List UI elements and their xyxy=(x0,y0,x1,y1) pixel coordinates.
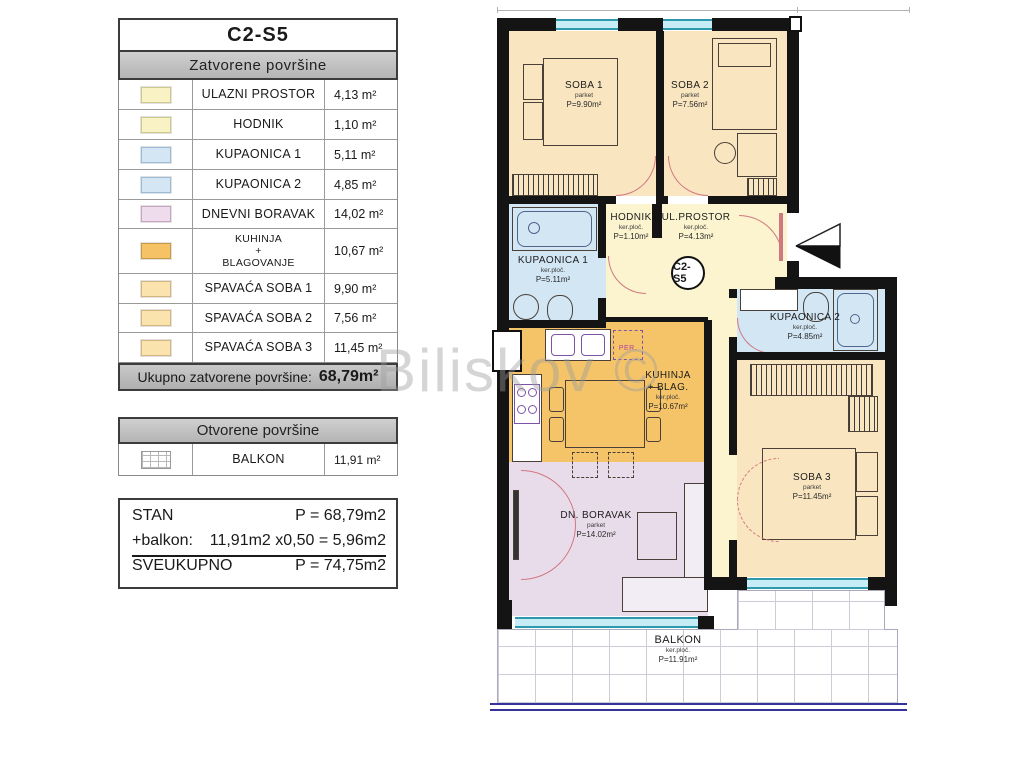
wall xyxy=(618,18,663,31)
balcony-railing xyxy=(490,703,907,711)
wall xyxy=(708,196,787,204)
row-value: 4,13 m² xyxy=(325,80,397,109)
total-value: 68,79m² xyxy=(319,368,379,386)
wall xyxy=(497,600,512,629)
wall-pillar xyxy=(789,16,802,32)
row-label: DNEVNI BORAVAK xyxy=(193,200,325,228)
label-soba1: SOBA 1 parket P=9.90m² xyxy=(534,80,634,109)
unit-title: C2-S5 xyxy=(118,18,398,52)
chair-ghost xyxy=(608,452,634,478)
entrance-door-leaf xyxy=(779,213,783,261)
label-kuhinja: KUHINJA + BLAG. ker.ploč. P=10.67m² xyxy=(618,370,718,411)
summary-line-balkon: +balkon: 11,91m2 x0,50 = 5,96m2 xyxy=(132,532,386,557)
table-row: SPAVAĆA SOBA 2 7,56 m² xyxy=(119,304,397,333)
row-label: ULAZNI PROSTOR xyxy=(193,80,325,109)
row-value: 11,91 m² xyxy=(325,444,397,475)
floorplan-page: { "legend": { "title": "C2-S5", "closed_… xyxy=(0,0,1024,768)
label-soba3: SOBA 3 parket P=11.45m² xyxy=(762,472,862,501)
wall xyxy=(868,577,885,590)
wall xyxy=(885,277,897,606)
table-row: SPAVAĆA SOBA 1 9,90 m² xyxy=(119,274,397,304)
room-balkon-notch xyxy=(737,590,885,630)
window-soba3-balkon xyxy=(747,578,868,589)
table-row: SPAVAĆA SOBA 3 11,45 m² xyxy=(119,333,397,362)
row-label: HODNIK xyxy=(193,110,325,139)
legend-panel: C2-S5 Zatvorene površine ULAZNI PROSTOR … xyxy=(118,18,398,476)
row-label: KUPAONICA 2 xyxy=(193,170,325,199)
sink-counter-kupaonica2 xyxy=(740,289,798,311)
table-row: ULAZNI PROSTOR 4,13 m² xyxy=(119,80,397,110)
summary-line-total: SVEUKUPNO P = 74,75m2 xyxy=(132,557,386,582)
unit-badge: C2-S5 xyxy=(671,256,705,290)
color-swatch-kupaonica2 xyxy=(141,177,171,193)
label-ulprostor: UL.PROSTOR ker.ploč. P=4.13m² xyxy=(646,212,746,241)
window-dnevni-balkon xyxy=(515,617,698,628)
dimension-tick xyxy=(797,7,798,13)
color-swatch-ulazni xyxy=(141,87,171,103)
row-value: 1,10 m² xyxy=(325,110,397,139)
color-swatch-kuhinja xyxy=(141,243,171,259)
wardrobe-soba1 xyxy=(512,174,598,196)
pillow-soba2 xyxy=(718,43,771,67)
chair-soba2 xyxy=(714,142,736,164)
grid-swatch-balkon xyxy=(141,451,171,469)
dimension-tick xyxy=(497,7,498,13)
wall xyxy=(729,337,737,455)
burner-icon xyxy=(528,405,537,414)
table-row: KUPAONICA 1 5,11 m² xyxy=(119,140,397,170)
entrance-arrow-icon xyxy=(794,222,842,270)
closed-areas-table: ULAZNI PROSTOR 4,13 m² HODNIK 1,10 m² KU… xyxy=(118,80,398,363)
table-row: HODNIK 1,10 m² xyxy=(119,110,397,140)
desk-soba2 xyxy=(737,133,777,177)
chair xyxy=(646,417,661,442)
label-kupaonica1: KUPAONICA 1 ker.ploč. P=5.11m² xyxy=(503,255,603,284)
drain-icon xyxy=(528,222,540,234)
wall xyxy=(737,352,885,360)
sink-basin xyxy=(551,334,575,356)
row-label: SPAVAĆA SOBA 3 xyxy=(193,333,325,362)
row-label: KUHINJA + BLAGOVANJE xyxy=(193,229,325,273)
color-swatch-soba2 xyxy=(141,310,171,326)
window-soba2 xyxy=(663,19,712,30)
row-label: SPAVAĆA SOBA 2 xyxy=(193,304,325,332)
total-label: Ukupno zatvorene površine: xyxy=(138,369,312,385)
chair-ghost xyxy=(572,452,598,478)
washer-label: PER. xyxy=(613,345,643,352)
wall xyxy=(729,289,737,298)
wall xyxy=(729,540,737,577)
wardrobe-soba3 xyxy=(750,364,873,396)
row-value: 9,90 m² xyxy=(325,274,397,303)
table-row: KUPAONICA 2 4,85 m² xyxy=(119,170,397,200)
burner-icon xyxy=(517,388,526,397)
table-row: DNEVNI BORAVAK 14,02 m² xyxy=(119,200,397,229)
wall xyxy=(775,277,897,289)
table-row-balkon: BALKON 11,91 m² xyxy=(118,444,398,476)
dimension-line xyxy=(497,10,910,11)
label-balkon: BALKON ker.ploč. P=11.91m² xyxy=(628,634,728,665)
wall xyxy=(787,18,799,213)
row-value: 10,67 m² xyxy=(325,229,397,273)
pillow-soba3 xyxy=(856,496,878,536)
color-swatch-soba3 xyxy=(141,340,171,356)
row-value: 4,85 m² xyxy=(325,170,397,199)
sink-basin xyxy=(581,334,605,356)
shelf-soba2 xyxy=(747,178,777,196)
row-label: BALKON xyxy=(193,444,325,475)
wall xyxy=(656,196,668,204)
color-swatch-kupaonica1 xyxy=(141,147,171,163)
wall xyxy=(729,577,747,590)
color-swatch-dnevni xyxy=(141,206,171,222)
burner-icon xyxy=(517,405,526,414)
open-areas-header: Otvorene površine xyxy=(118,417,398,444)
wall xyxy=(704,320,712,577)
color-swatch-hodnik xyxy=(141,117,171,133)
row-value: 5,11 m² xyxy=(325,140,397,169)
sofa-horizontal xyxy=(622,577,708,612)
wardrobe-soba3 xyxy=(848,396,878,432)
label-dnevni-boravak: DN. BORAVAK parket P=14.02m² xyxy=(546,510,646,539)
tv-panel xyxy=(513,490,519,560)
table-row: KUHINJA + BLAGOVANJE 10,67 m² xyxy=(119,229,397,274)
row-value: 14,02 m² xyxy=(325,200,397,228)
chair xyxy=(549,417,564,442)
label-soba2: SOBA 2 parket P=7.56m² xyxy=(640,80,740,109)
wall xyxy=(509,196,616,204)
wall xyxy=(712,18,799,31)
wall xyxy=(606,317,708,322)
window-soba1 xyxy=(556,19,618,30)
row-value: 7,56 m² xyxy=(325,304,397,332)
summary-box: STAN P = 68,79m2 +balkon: 11,91m2 x0,50 … xyxy=(118,498,398,589)
dimension-tick xyxy=(909,7,910,13)
wall xyxy=(698,616,714,629)
wall xyxy=(656,31,664,196)
color-swatch-soba1 xyxy=(141,281,171,297)
label-kupaonica2: KUPAONICA 2 ker.ploč. P=4.85m² xyxy=(755,312,855,341)
sink-kupaonica1 xyxy=(513,294,539,320)
closed-areas-header: Zatvorene površine xyxy=(118,52,398,80)
row-value: 11,45 m² xyxy=(325,333,397,362)
row-label: KUPAONICA 1 xyxy=(193,140,325,169)
burner-icon xyxy=(528,388,537,397)
wall xyxy=(497,320,606,328)
closed-total-bar: Ukupno zatvorene površine: 68,79m² xyxy=(118,363,398,391)
row-label: SPAVAĆA SOBA 1 xyxy=(193,274,325,303)
chair xyxy=(549,387,564,412)
fridge-box xyxy=(492,330,522,372)
summary-line-stan: STAN P = 68,79m2 xyxy=(132,507,386,532)
